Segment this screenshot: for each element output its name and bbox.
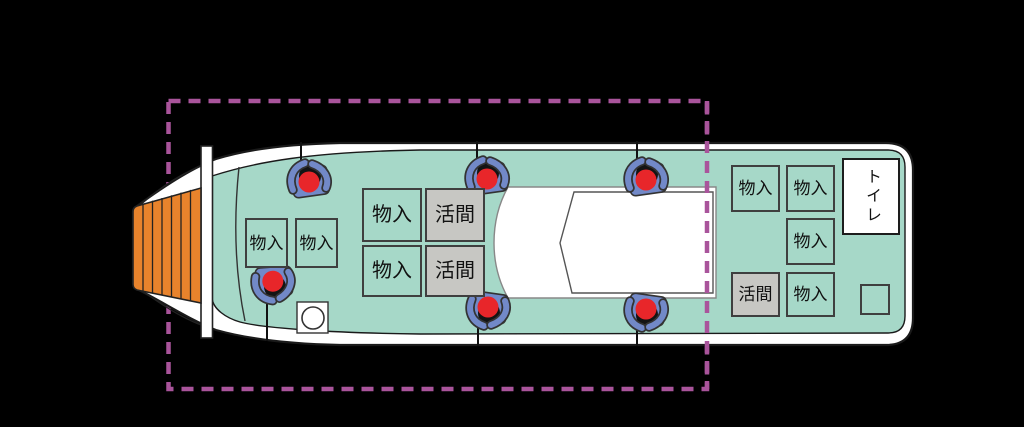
bow-platform [133,188,201,303]
angler-icon [627,161,667,196]
livewell-box: 活間 [731,272,780,317]
storage-box: 物入 [362,245,422,297]
boat-deck-plan: 物入 物入 物入 活間 物入 活間 物入 物入 物入 活間 物入 トイレ [0,0,1024,427]
angler-icon [627,293,667,328]
storage-box: 物入 [362,188,422,242]
toilet-room: トイレ [842,158,900,235]
storage-box: 物入 [245,218,288,268]
bait-bucket-icon [297,302,328,333]
storage-box: 物入 [786,272,835,317]
storage-box: 物入 [786,165,835,212]
wheelhouse [560,192,713,293]
storage-box: 物入 [295,218,338,268]
angler-icon [290,163,330,198]
storage-box: 物入 [786,218,835,265]
storage-box: 物入 [731,165,780,212]
unlabeled-box [860,284,890,315]
mast [201,146,213,338]
livewell-box: 活間 [425,188,485,242]
livewell-box: 活間 [425,245,485,297]
